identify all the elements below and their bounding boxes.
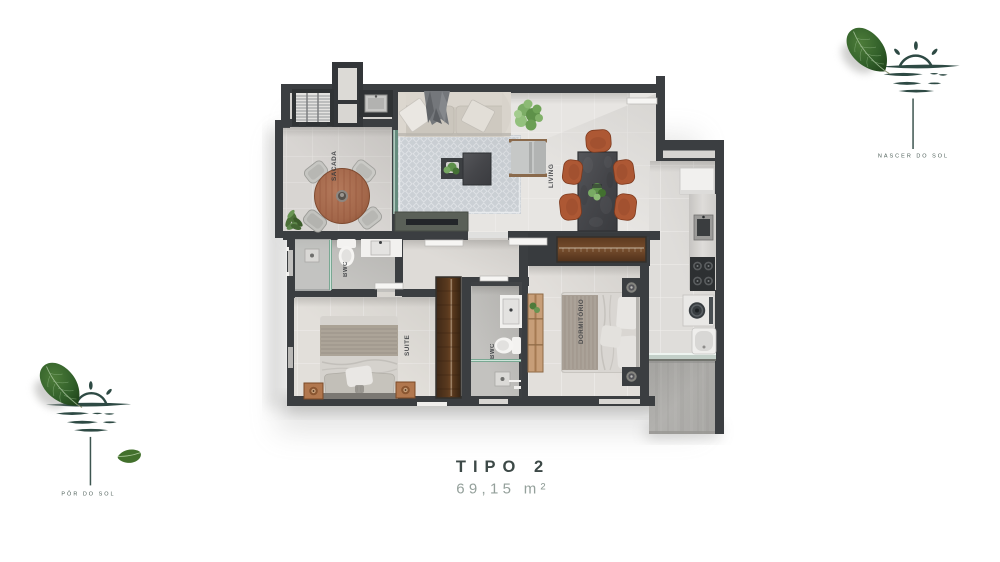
svg-text:TIPO 2: TIPO 2 [456,458,550,476]
svg-text:LIVING: LIVING [548,164,555,188]
svg-text:69,15 m²: 69,15 m² [456,481,550,498]
svg-text:BWC: BWC [343,261,349,277]
svg-text:BWC: BWC [490,343,496,359]
svg-text:PÔR DO SOL: PÔR DO SOL [61,491,115,498]
svg-text:SACADA: SACADA [331,151,338,181]
svg-text:SUITE: SUITE [404,334,411,356]
svg-text:DORMITÓRIO: DORMITÓRIO [577,299,585,344]
svg-text:NASCER DO SOL: NASCER DO SOL [878,154,949,160]
